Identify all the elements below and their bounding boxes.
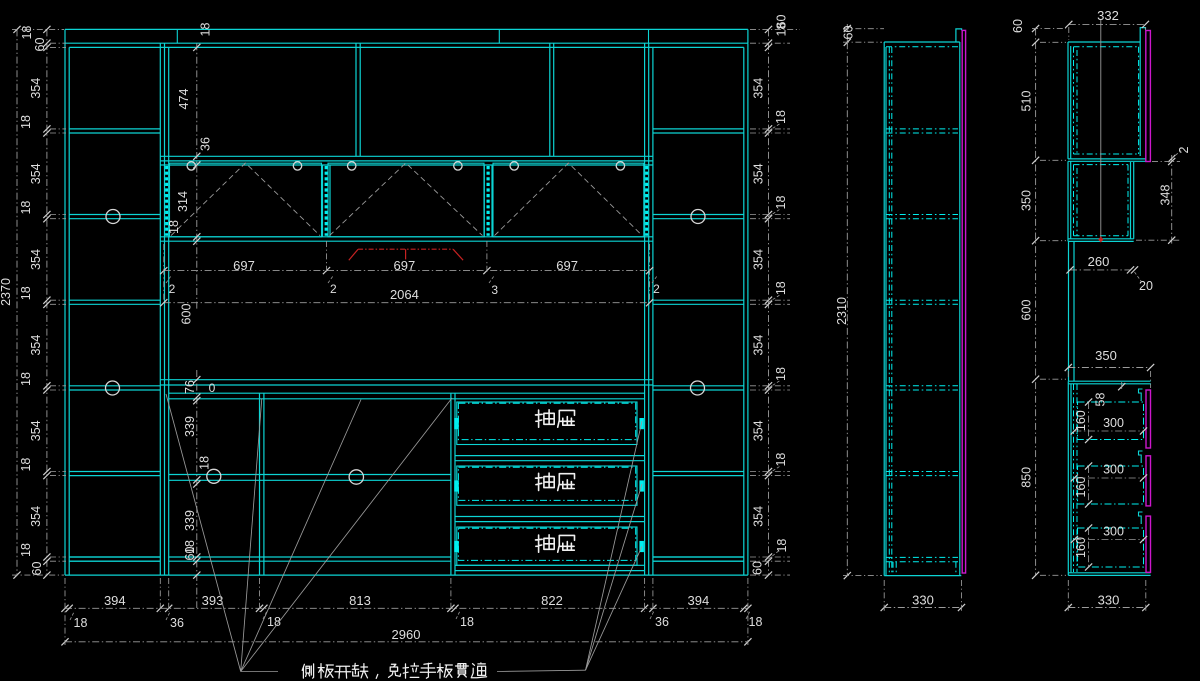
svg-text:18: 18 (775, 539, 789, 553)
svg-text:2370: 2370 (0, 278, 13, 306)
svg-text:330: 330 (1098, 593, 1120, 608)
svg-text:3: 3 (491, 283, 498, 297)
svg-text:354: 354 (29, 78, 43, 99)
svg-text:160: 160 (1074, 537, 1088, 558)
svg-text:60: 60 (842, 26, 856, 40)
svg-text:339: 339 (183, 416, 197, 437)
svg-text:354: 354 (29, 249, 43, 270)
svg-text:697: 697 (233, 258, 255, 273)
svg-text:60: 60 (183, 547, 197, 561)
svg-text:697: 697 (394, 258, 416, 273)
svg-text:332: 332 (1097, 8, 1119, 23)
svg-text:348: 348 (1159, 185, 1173, 206)
svg-text:2310: 2310 (835, 297, 849, 325)
svg-text:18: 18 (19, 201, 33, 215)
svg-text:822: 822 (541, 593, 563, 608)
svg-text:600: 600 (179, 304, 193, 325)
svg-text:76: 76 (183, 380, 197, 394)
svg-text:314: 314 (176, 191, 190, 212)
svg-text:510: 510 (1020, 91, 1034, 112)
svg-text:60: 60 (1011, 19, 1025, 33)
svg-text:354: 354 (752, 420, 766, 441)
svg-text:18: 18 (19, 372, 33, 386)
svg-text:18: 18 (167, 220, 181, 234)
svg-text:36: 36 (199, 137, 213, 151)
svg-text:354: 354 (29, 506, 43, 527)
svg-text:354: 354 (752, 335, 766, 356)
svg-text:18: 18 (19, 458, 33, 472)
svg-text:697: 697 (556, 258, 578, 273)
svg-text:18: 18 (749, 615, 763, 629)
svg-text:354: 354 (752, 249, 766, 270)
svg-text:60: 60 (751, 561, 765, 575)
svg-text:18: 18 (199, 23, 213, 37)
svg-text:160: 160 (1074, 477, 1088, 498)
svg-text:2: 2 (653, 282, 660, 296)
svg-text:339: 339 (183, 510, 197, 531)
svg-text:350: 350 (1020, 190, 1034, 211)
svg-text:2: 2 (1177, 146, 1191, 153)
svg-text:18: 18 (460, 615, 474, 629)
svg-text:394: 394 (104, 593, 126, 608)
svg-text:18: 18 (774, 453, 788, 467)
svg-text:330: 330 (912, 593, 934, 608)
svg-text:18: 18 (20, 26, 34, 40)
svg-text:18: 18 (19, 543, 33, 557)
svg-text:2960: 2960 (392, 627, 421, 642)
svg-text:18: 18 (774, 196, 788, 210)
svg-text:18: 18 (774, 367, 788, 381)
svg-text:350: 350 (1095, 348, 1117, 363)
svg-text:60: 60 (30, 562, 44, 576)
svg-text:2: 2 (330, 282, 337, 296)
svg-text:0: 0 (209, 381, 216, 395)
svg-text:394: 394 (688, 593, 710, 608)
svg-text:354: 354 (752, 506, 766, 527)
svg-text:354: 354 (29, 335, 43, 356)
svg-text:300: 300 (1103, 525, 1124, 539)
svg-text:474: 474 (177, 89, 191, 110)
svg-text:813: 813 (349, 593, 371, 608)
svg-text:2: 2 (169, 282, 176, 296)
svg-text:2064: 2064 (390, 287, 419, 302)
svg-text:354: 354 (29, 163, 43, 184)
svg-text:354: 354 (752, 163, 766, 184)
svg-text:18: 18 (74, 616, 88, 630)
svg-text:600: 600 (1020, 300, 1034, 321)
svg-text:18: 18 (19, 286, 33, 300)
svg-text:850: 850 (1020, 467, 1034, 488)
svg-text:18: 18 (774, 281, 788, 295)
svg-text:300: 300 (1103, 463, 1124, 477)
svg-text:260: 260 (1088, 254, 1110, 269)
svg-text:300: 300 (1103, 416, 1124, 430)
svg-text:18: 18 (775, 23, 789, 37)
svg-text:18: 18 (19, 115, 33, 129)
svg-text:60: 60 (33, 38, 47, 52)
svg-text:18: 18 (774, 110, 788, 124)
svg-text:58: 58 (1094, 393, 1108, 407)
svg-text:160: 160 (1074, 410, 1088, 431)
svg-text:18: 18 (198, 456, 212, 470)
svg-text:20: 20 (1139, 279, 1153, 293)
svg-text:36: 36 (170, 616, 184, 630)
svg-text:354: 354 (29, 420, 43, 441)
svg-text:354: 354 (752, 78, 766, 99)
svg-text:36: 36 (655, 615, 669, 629)
